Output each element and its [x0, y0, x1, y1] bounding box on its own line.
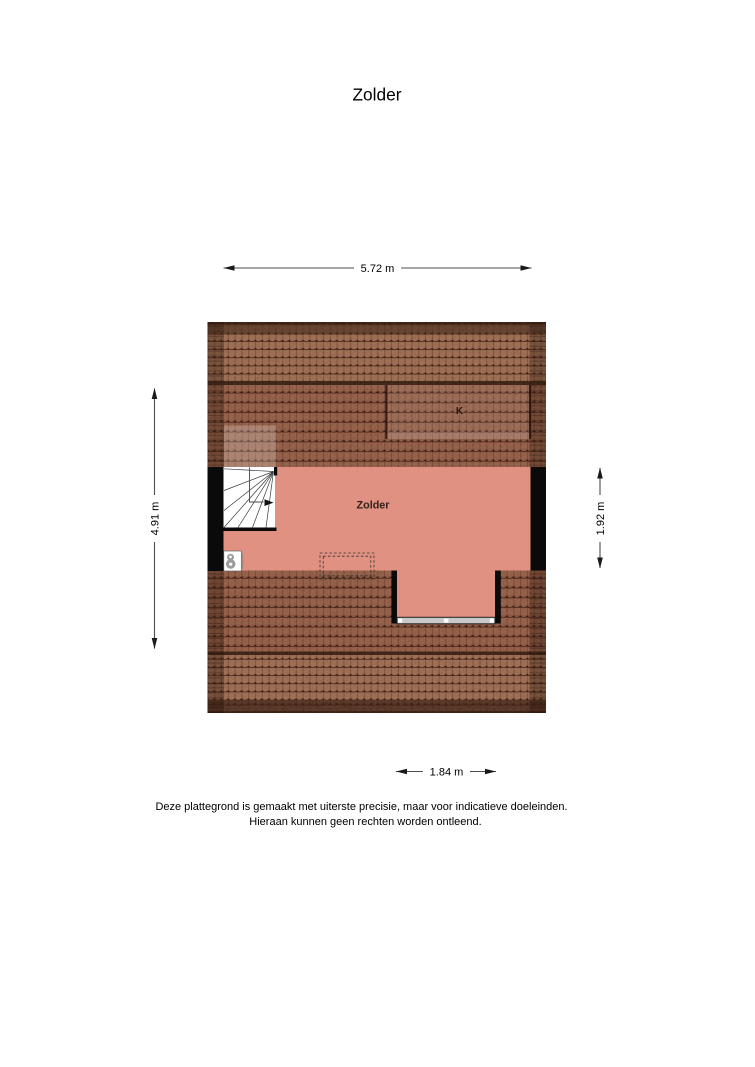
svg-text:1.84 m: 1.84 m	[430, 767, 464, 779]
svg-text:4.91 m: 4.91 m	[150, 502, 162, 536]
svg-text:Deze plattegrond is gemaakt me: Deze plattegrond is gemaakt met uiterste…	[155, 801, 567, 813]
svg-text:K: K	[456, 406, 464, 417]
svg-text:1.92 m: 1.92 m	[595, 502, 607, 536]
svg-text:Zolder: Zolder	[357, 499, 391, 511]
svg-text:Zolder: Zolder	[353, 85, 402, 105]
svg-text:Hieraan kunnen geen rechten wo: Hieraan kunnen geen rechten worden ontle…	[249, 816, 481, 828]
svg-text:5.72 m: 5.72 m	[361, 263, 395, 275]
